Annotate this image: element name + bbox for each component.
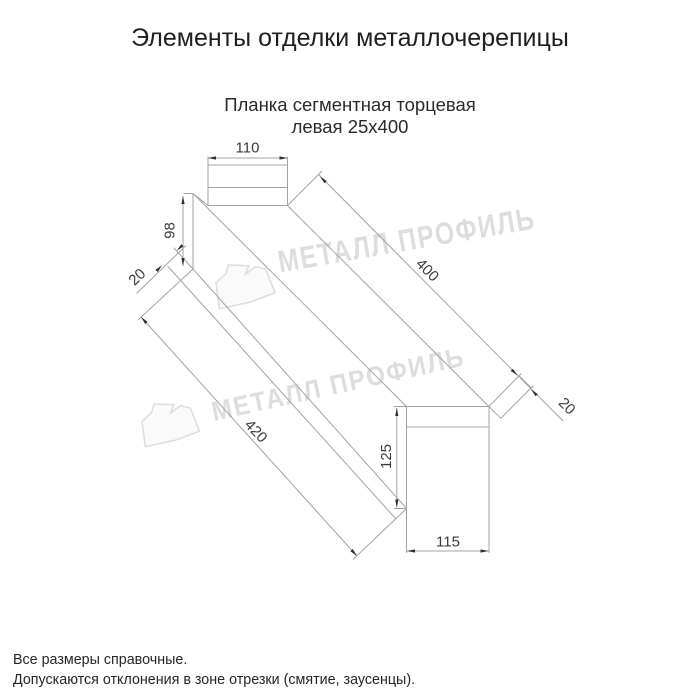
svg-text:МЕТАЛЛ ПРОФИЛЬ: МЕТАЛЛ ПРОФИЛЬ bbox=[275, 201, 538, 279]
svg-text:98: 98 bbox=[162, 222, 179, 239]
svg-text:420: 420 bbox=[241, 416, 271, 446]
svg-text:125: 125 bbox=[378, 444, 395, 469]
svg-text:20: 20 bbox=[555, 394, 579, 418]
svg-text:115: 115 bbox=[436, 534, 460, 551]
svg-text:110: 110 bbox=[236, 140, 260, 157]
svg-text:20: 20 bbox=[125, 265, 149, 289]
svg-text:400: 400 bbox=[412, 255, 442, 285]
